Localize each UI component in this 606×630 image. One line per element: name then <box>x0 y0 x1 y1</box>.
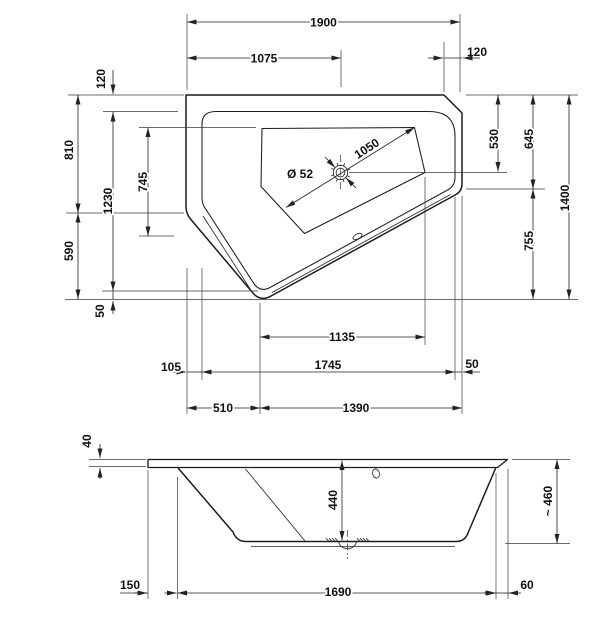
dim-60-label: 60 <box>520 578 534 592</box>
drain-front <box>326 530 369 559</box>
dim-120-bevel-label: 120 <box>467 45 487 59</box>
dim-105-label: 105 <box>161 360 181 374</box>
dim-1900-label: 1900 <box>310 16 337 30</box>
rim-step-line-left <box>203 216 251 290</box>
dim-1135-label: 1135 <box>329 330 355 344</box>
dim-460-label: ~ 460 <box>541 485 555 516</box>
dim-810-label: 810 <box>62 140 76 160</box>
dim-120-rim-label: 120 <box>94 69 108 89</box>
dim-1390-label: 1390 <box>343 401 370 415</box>
dim-745-label: 745 <box>136 172 150 192</box>
top-view: 1900 1075 120 120 810 1230 745 590 50 53… <box>62 14 578 415</box>
dim-1230-label: 1230 <box>101 187 115 214</box>
dim-645-label: 645 <box>522 129 536 149</box>
rim-step-line-right <box>272 195 451 293</box>
tub-plan-outline <box>186 95 462 298</box>
dim-590-label: 590 <box>62 241 76 261</box>
overflow-hole-front <box>372 468 381 479</box>
extension-lines-top-view <box>65 14 578 414</box>
dim-510-label: 510 <box>213 401 233 415</box>
overflow-hole-plan <box>352 232 363 241</box>
dim-755-label: 755 <box>522 231 536 251</box>
tub-outer-edge <box>186 95 462 298</box>
dim-50-left-label: 50 <box>93 304 107 318</box>
dimension-lines-top-view <box>78 22 569 408</box>
dim-530-label: 530 <box>487 129 501 149</box>
dim-1050-label: 1050 <box>352 135 382 161</box>
dim-1400-label: 1400 <box>558 184 572 211</box>
technical-drawing-page: 1900 1075 120 120 810 1230 745 590 50 53… <box>0 0 606 630</box>
dim-1690-label: 1690 <box>325 585 352 599</box>
dim-440-label: 440 <box>326 490 340 510</box>
dim-40-label: 40 <box>80 434 94 448</box>
drain-diameter-arrow-nw <box>325 157 335 168</box>
bathtub-dimension-drawing: 1900 1075 120 120 810 1230 745 590 50 53… <box>0 0 606 630</box>
dim-150-label: 150 <box>120 578 140 592</box>
inner-wall-edge <box>246 469 306 541</box>
drain-diameter-arrow-se <box>346 178 356 188</box>
dim-1075-label: 1075 <box>251 52 278 66</box>
extension-lines-front-view <box>89 460 570 600</box>
drain-diameter-label: Ø 52 <box>287 167 313 181</box>
dim-1745-label: 1745 <box>315 358 342 372</box>
rim-slab <box>148 460 508 468</box>
dim-50-right-label: 50 <box>465 357 479 371</box>
front-view: 40 440 ~ 460 150 1690 60 <box>80 434 570 599</box>
